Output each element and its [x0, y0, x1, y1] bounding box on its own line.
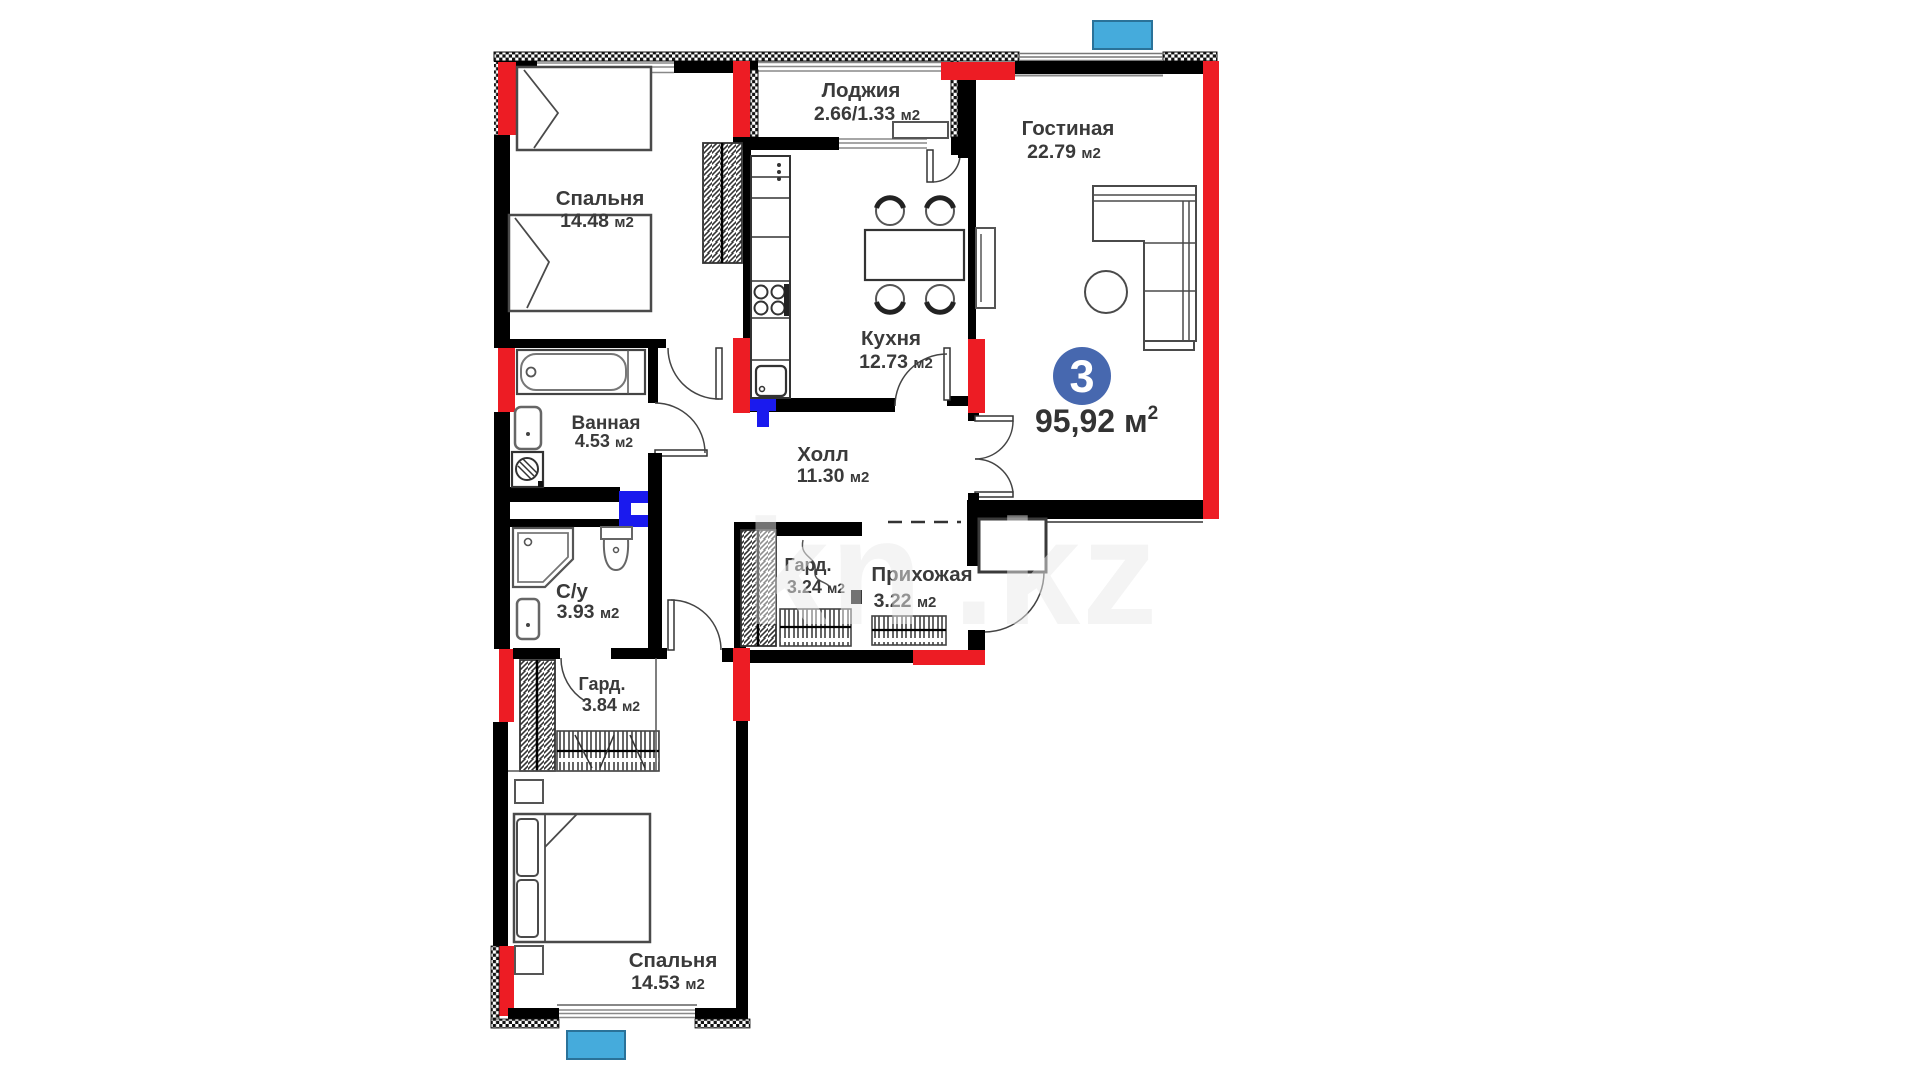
svg-text:Гард.: Гард. [579, 674, 626, 694]
svg-text:Спальня: Спальня [556, 187, 645, 210]
svg-text:3: 3 [1069, 351, 1094, 402]
svg-text:22.79 м2: 22.79 м2 [1027, 141, 1101, 163]
svg-text:Холл: Холл [797, 443, 848, 466]
svg-text:2.66/1.33 м2: 2.66/1.33 м2 [814, 103, 920, 125]
svg-text:14.53 м2: 14.53 м2 [631, 972, 705, 994]
svg-text:Гостиная: Гостиная [1022, 117, 1115, 140]
svg-text:4.53 м2: 4.53 м2 [575, 431, 633, 451]
svg-text:3.93 м2: 3.93 м2 [557, 601, 620, 623]
svg-text:12.73 м2: 12.73 м2 [859, 351, 933, 373]
svg-text:Лоджия: Лоджия [822, 79, 901, 102]
svg-text:11.30 м2: 11.30 м2 [797, 465, 870, 487]
svg-text:Кухня: Кухня [861, 327, 921, 350]
svg-text:С/у: С/у [556, 580, 589, 603]
svg-text:95,92 м2: 95,92 м2 [1035, 403, 1158, 439]
svg-text:Спальня: Спальня [629, 949, 718, 972]
svg-text:3.84 м2: 3.84 м2 [582, 695, 640, 715]
svg-text:14.48 м2: 14.48 м2 [560, 210, 634, 232]
svg-text:kn: kn [745, 488, 924, 656]
svg-text:.kz: .kz [953, 488, 1159, 656]
